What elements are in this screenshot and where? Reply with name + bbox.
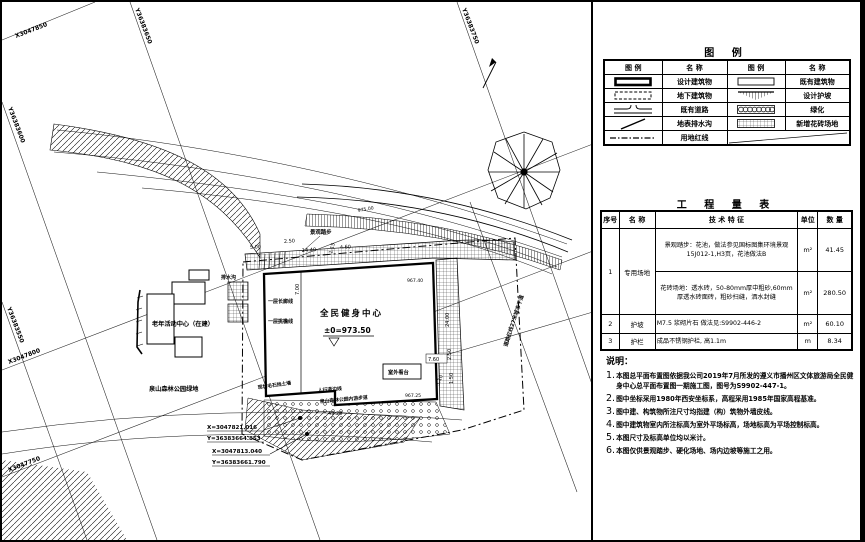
note-no-6: 6. xyxy=(606,446,615,456)
notes-section: 说明： 1. 本图总平面布置图依据我公司2019年7月所发的遵义市播州区文体旅游… xyxy=(606,354,854,456)
qty-r1b-unit: m² xyxy=(798,272,818,315)
slope-hatch-corner xyxy=(2,460,127,540)
legend-table: 图 例 名 称 图 例 名 称 设计建筑物 既有建筑物 地下建筑物 xyxy=(603,59,851,146)
qty-r2-qty: 60.10 xyxy=(818,315,852,334)
park-green-label: 泉山森林公园绿地 xyxy=(148,385,199,393)
design-slope-symbol xyxy=(727,89,785,103)
existing-road-name: 既有道路 xyxy=(662,103,727,117)
dim-7.00: 7.00 xyxy=(295,284,301,295)
qty-header-tech: 技 术 特 征 xyxy=(655,211,798,229)
design-slope-name: 设计护坡 xyxy=(785,89,850,103)
qty-r3-unit: m xyxy=(798,334,818,350)
survey-marker-icon xyxy=(483,58,496,88)
outdoor-stand-label: 室外看台 xyxy=(388,368,409,376)
landscape-steps-label: 景观踏步 xyxy=(309,228,332,236)
grid-label-x1: X3047850 xyxy=(14,21,48,40)
qty-r1-no: 1 xyxy=(601,229,619,315)
qty-r2-no: 2 xyxy=(601,315,619,334)
dim-49.20: 49.20 xyxy=(328,411,342,417)
senior-center-label: 老年活动中心（在建） xyxy=(152,320,214,328)
quantity-table-title: 工 程 量 表 xyxy=(593,196,860,211)
right-panel: 图 例 图 例 名 称 图 例 名 称 设计建筑物 既有建筑物 xyxy=(593,2,860,540)
dim-2.50b: 2.50 xyxy=(447,349,453,360)
note-text-2: 图中坐标采用1980年西安坐标系，高程采用1985年国家高程基准。 xyxy=(616,394,820,404)
building-name-label: 全民健身中心 xyxy=(319,308,383,319)
drawing-sheet: X3047850 X3047800 X3047750 Y36383600 Y36… xyxy=(0,0,865,542)
note-text-4: 图中建筑物室内所注标高为室外平场标高，场地标高为平场控制标高。 xyxy=(616,420,823,430)
existing-building-name: 既有建筑物 xyxy=(785,75,850,89)
legend-empty-cell xyxy=(727,131,850,146)
note-no-4: 4. xyxy=(606,420,615,430)
elevation-boxed: 7.60 xyxy=(428,357,439,363)
note-no-2: 2. xyxy=(606,394,615,404)
qty-header-qty: 数 量 xyxy=(818,211,852,229)
dim-5.00: 5.00 xyxy=(250,244,262,251)
qty-r1-name: 专用场地 xyxy=(619,229,655,315)
red-line-symbol xyxy=(604,131,662,146)
qty-header-no: 序号 xyxy=(601,211,619,229)
building-level-label: ±0=973.50 xyxy=(324,326,371,335)
grid-label-y1: Y36383600 xyxy=(6,105,26,144)
qty-r1a-tech: 景观踏步：花池，做法参见国标图集环境景观 15J012-1,H3页，花池做法B xyxy=(655,229,798,272)
note-no-5: 5. xyxy=(606,433,615,443)
note-text-6: 本图仅供景观踏步、硬化场地、场内边坡等施工之用。 xyxy=(616,446,777,456)
new-tile-symbol xyxy=(727,117,785,131)
qty-r3-no: 3 xyxy=(601,334,619,350)
site-plan: X3047850 X3047800 X3047750 Y36383600 Y36… xyxy=(2,2,593,540)
qty-r2-unit: m² xyxy=(798,315,818,334)
existing-building-symbol xyxy=(727,75,785,89)
dim-1.50: 1.50 xyxy=(449,373,455,384)
notes-title: 说明： xyxy=(606,354,854,367)
note-item-3: 3. 图中建、构筑物所注尺寸均指建（构）筑物外墙皮线。 xyxy=(606,407,854,417)
elev-967.40: 967.40 xyxy=(407,278,423,284)
corridor-line-label: 一层长廊线 xyxy=(268,298,293,305)
red-line-name: 用地红线 xyxy=(662,131,727,146)
qty-r1a-qty: 41.45 xyxy=(818,229,852,272)
callout-p2-x: X=3047813.040 xyxy=(212,449,262,455)
note-no-1: 1. xyxy=(606,371,615,381)
qty-header-name: 名 称 xyxy=(619,211,655,229)
grid-label-x2: X3047800 xyxy=(7,347,41,366)
surface-ditch-symbol xyxy=(604,117,662,131)
road-redline-label: 道路红线27米城市干道 xyxy=(501,293,526,348)
dim-4.60: 4.60 xyxy=(340,244,352,251)
underground-building-symbol xyxy=(604,89,662,103)
existing-tree-icon xyxy=(488,132,560,209)
greenery-symbol xyxy=(727,103,785,117)
slope-hatch-area xyxy=(50,124,260,258)
qty-header-unit: 单位 xyxy=(798,211,818,229)
note-item-2: 2. 图中坐标采用1980年西安坐标系，高程采用1985年国家高程基准。 xyxy=(606,394,854,404)
qty-r3-tech: 成品不锈钢护栏, 高1.1m xyxy=(655,334,798,350)
qty-r3-name: 护栏 xyxy=(619,334,655,350)
note-no-3: 3. xyxy=(606,407,615,417)
callout-p1-x: X=3047821.016 xyxy=(207,425,257,431)
legend-header-sym2: 图 例 xyxy=(727,60,785,75)
qty-r1a-unit: m² xyxy=(798,229,818,272)
note-item-1: 1. 本图总平面布置图依据我公司2019年7月所发的遵义市播州区文体旅游局全民健… xyxy=(606,371,854,391)
legend-title: 图 例 xyxy=(593,44,860,59)
qty-r1b-qty: 280.50 xyxy=(818,272,852,315)
elev-967.25: 967.25 xyxy=(405,393,421,399)
eave-line-label: 一层挑檐线 xyxy=(268,318,293,325)
note-item-5: 5. 本图尺寸及标高单位均以米计。 xyxy=(606,433,854,443)
surface-ditch-name: 地表排水沟 xyxy=(662,117,727,131)
underground-building-name: 地下建筑物 xyxy=(662,89,727,103)
drain-label: 排水沟 xyxy=(221,274,236,281)
contour-elev: 975.00 xyxy=(357,205,374,214)
note-item-6: 6. 本图仅供景观踏步、硬化场地、场内边坡等施工之用。 xyxy=(606,446,854,456)
note-text-1: 本图总平面布置图依据我公司2019年7月所发的遵义市播州区文体旅游局全民健身中心… xyxy=(616,371,854,391)
design-building-symbol xyxy=(604,75,662,89)
quantity-table: 序号 名 称 技 术 特 征 单位 数 量 1 专用场地 景观踏步：花池，做法参… xyxy=(600,210,853,351)
design-building-name: 设计建筑物 xyxy=(662,75,727,89)
note-item-4: 4. 图中建筑物室内所注标高为室外平场标高，场地标高为平场控制标高。 xyxy=(606,420,854,430)
greenery-name: 绿化 xyxy=(785,103,850,117)
existing-road-symbol xyxy=(604,103,662,117)
note-text-5: 本图尺寸及标高单位均以米计。 xyxy=(616,433,710,443)
callout-p1-y: Y=36383664.853 xyxy=(206,436,261,442)
senior-center-buildings xyxy=(136,270,209,357)
dim-24.00: 24.00 xyxy=(445,313,451,327)
note-text-3: 图中建、构筑物所注尺寸均指建（构）筑物外墙皮线。 xyxy=(616,407,777,417)
qty-r1b-tech: 花砖场地：透水砖，50-80mm厚中粗砂,60mm 厚透水砖面砖，粗砂扫缝，洒水… xyxy=(655,272,798,315)
callout-p2-y: Y=36383661.790 xyxy=(211,460,266,466)
legend-header-name2: 名 称 xyxy=(785,60,850,75)
qty-r2-tech: M7.5 浆砌片石 做法见:S9902-446-2 xyxy=(655,315,798,334)
dim-2.50: 2.50 xyxy=(284,238,296,245)
new-tile-name: 新增花砖场地 xyxy=(785,117,850,131)
qty-r2-name: 护坡 xyxy=(619,315,655,334)
qty-r3-qty: 8.34 xyxy=(818,334,852,350)
legend-header-sym1: 图 例 xyxy=(604,60,662,75)
legend-header-name1: 名 称 xyxy=(662,60,727,75)
